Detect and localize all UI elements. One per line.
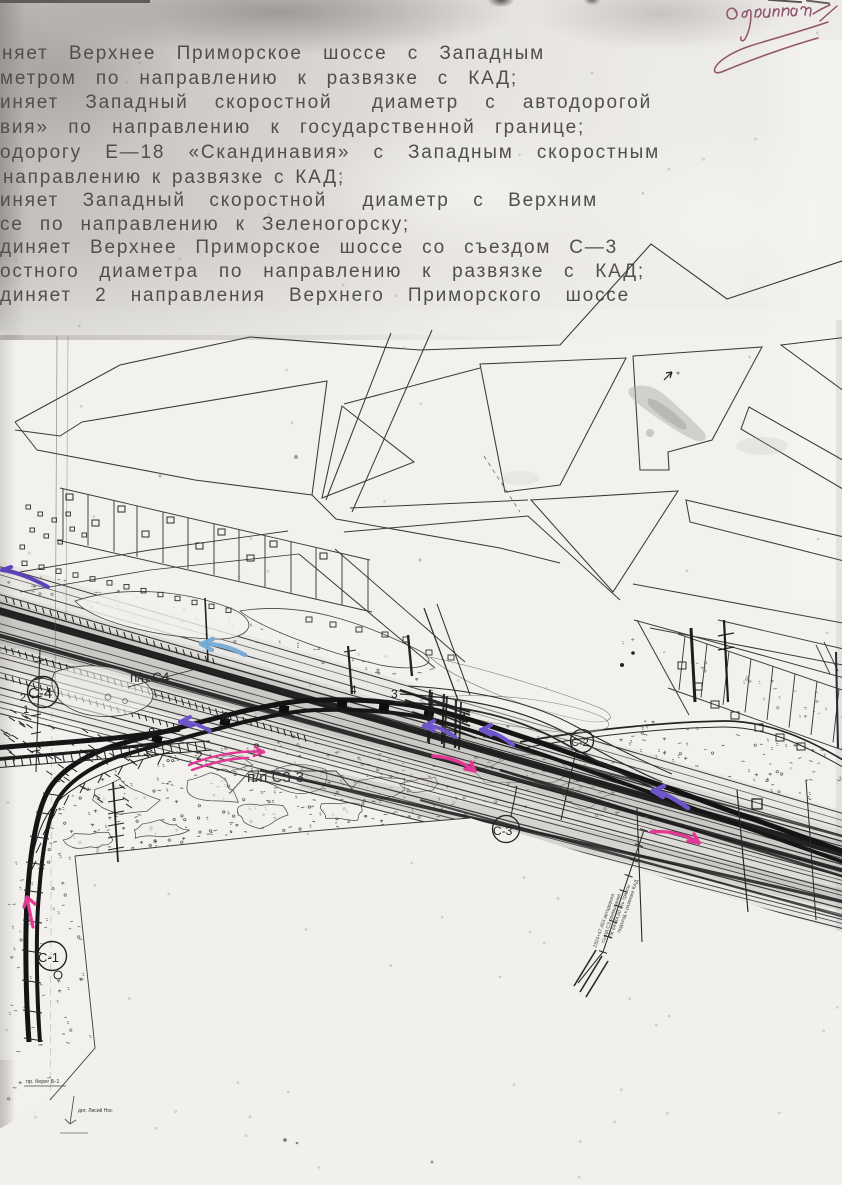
svg-text:днт. Лисий Нос: днт. Лисий Нос: [78, 1107, 113, 1114]
svg-text:п/п С3-3: п/п С3-3: [247, 769, 304, 786]
svg-text:С-1: С-1: [38, 950, 59, 965]
svg-text:С-4: С-4: [28, 685, 52, 702]
svg-text:4: 4: [350, 683, 357, 697]
svg-text:2: 2: [428, 700, 435, 714]
svg-text:С-3: С-3: [493, 824, 513, 838]
svg-text:С-2: С-2: [571, 737, 589, 749]
svg-text:5: 5: [289, 690, 296, 705]
svg-text:1: 1: [461, 711, 468, 725]
svg-text:пр. берег Б-1: пр. берег Б-1: [26, 1079, 59, 1085]
svg-text:8: 8: [148, 725, 155, 740]
svg-text:6: 6: [222, 709, 229, 724]
svg-text:2: 2: [20, 692, 26, 704]
svg-text:1: 1: [23, 704, 29, 716]
svg-text:3: 3: [391, 687, 398, 701]
